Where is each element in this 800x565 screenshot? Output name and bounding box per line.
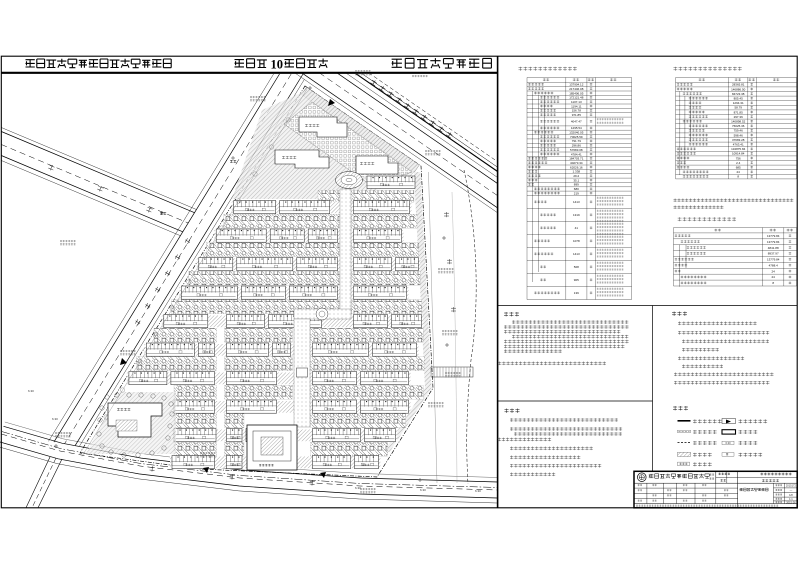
svg-text:6.30: 6.30 (28, 389, 34, 393)
svg-text:139: 139 (574, 291, 579, 295)
svg-text:759.46: 759.46 (734, 129, 744, 133)
svg-text:13779.84: 13779.84 (767, 234, 780, 238)
svg-text:791.79: 791.79 (572, 139, 582, 143)
svg-text:28365.81: 28365.81 (732, 83, 745, 87)
svg-text:905: 905 (574, 278, 579, 282)
svg-text:140898.52: 140898.52 (731, 120, 746, 124)
svg-text:13779.84: 13779.84 (767, 240, 780, 244)
svg-text:10: 10 (271, 58, 284, 72)
svg-text:2015.06: 2015.06 (786, 501, 796, 505)
svg-text:146886.50: 146886.50 (731, 87, 746, 91)
svg-text:756: 756 (736, 156, 741, 160)
svg-text:685: 685 (736, 166, 741, 170)
svg-text:598.46: 598.46 (734, 133, 744, 137)
svg-text:41: 41 (575, 226, 579, 230)
svg-text:2.4: 2.4 (736, 161, 741, 165)
svg-text:1413: 1413 (573, 252, 580, 256)
svg-text:134875.84: 134875.84 (731, 147, 746, 151)
svg-text:58.79: 58.79 (734, 106, 742, 110)
svg-text:57683.08: 57683.08 (570, 148, 583, 152)
svg-text:1078: 1078 (573, 239, 580, 243)
svg-text:6.30: 6.30 (52, 417, 58, 421)
svg-text:8937.97: 8937.97 (768, 252, 779, 256)
svg-text:899: 899 (574, 183, 579, 187)
svg-text:10914.84: 10914.84 (732, 152, 745, 156)
svg-text:1194.11: 1194.11 (571, 104, 582, 108)
svg-text:62026.16: 62026.16 (570, 165, 583, 169)
svg-text:217446.08: 217446.08 (569, 87, 584, 91)
svg-text:297.36: 297.36 (734, 115, 744, 119)
svg-text:4841.88: 4841.88 (768, 246, 779, 250)
svg-text:6.30: 6.30 (475, 489, 481, 493)
svg-text:4763.41: 4763.41 (733, 143, 744, 147)
svg-text:132040.05: 132040.05 (569, 131, 584, 135)
svg-text:1413: 1413 (573, 200, 580, 204)
svg-text:24: 24 (772, 275, 776, 279)
svg-text:172121.48: 172121.48 (569, 96, 584, 100)
svg-text:184703.71: 184703.71 (569, 157, 584, 161)
svg-text:24: 24 (772, 269, 776, 273)
svg-text:84723.38: 84723.38 (732, 92, 745, 96)
svg-text:1319: 1319 (573, 213, 580, 217)
svg-text:4788.4: 4788.4 (769, 263, 779, 267)
svg-text:1/8: 1/8 (789, 493, 793, 497)
svg-text:1294.31: 1294.31 (733, 101, 744, 105)
svg-text:29.2: 29.2 (573, 174, 579, 178)
svg-text:6.30: 6.30 (420, 488, 426, 492)
svg-text:37683.28: 37683.28 (732, 138, 745, 142)
svg-text:13779.84: 13779.84 (767, 258, 780, 262)
svg-text:2015172: 2015172 (786, 484, 797, 488)
svg-text:4047.47: 4047.47 (571, 120, 582, 124)
svg-text:805.45: 805.45 (734, 97, 744, 101)
svg-text:24: 24 (737, 170, 741, 174)
svg-text:871.85: 871.85 (734, 110, 744, 114)
svg-text:6.30: 6.30 (355, 486, 361, 490)
svg-text:971.85: 971.85 (572, 113, 582, 117)
svg-text:219: 219 (574, 191, 579, 195)
svg-text:1:1: 1:1 (789, 497, 793, 501)
svg-text:508: 508 (574, 265, 579, 269)
svg-text:—: — (790, 489, 793, 492)
svg-text:6.30: 6.30 (725, 441, 731, 445)
svg-text:76025.36: 76025.36 (732, 124, 745, 128)
